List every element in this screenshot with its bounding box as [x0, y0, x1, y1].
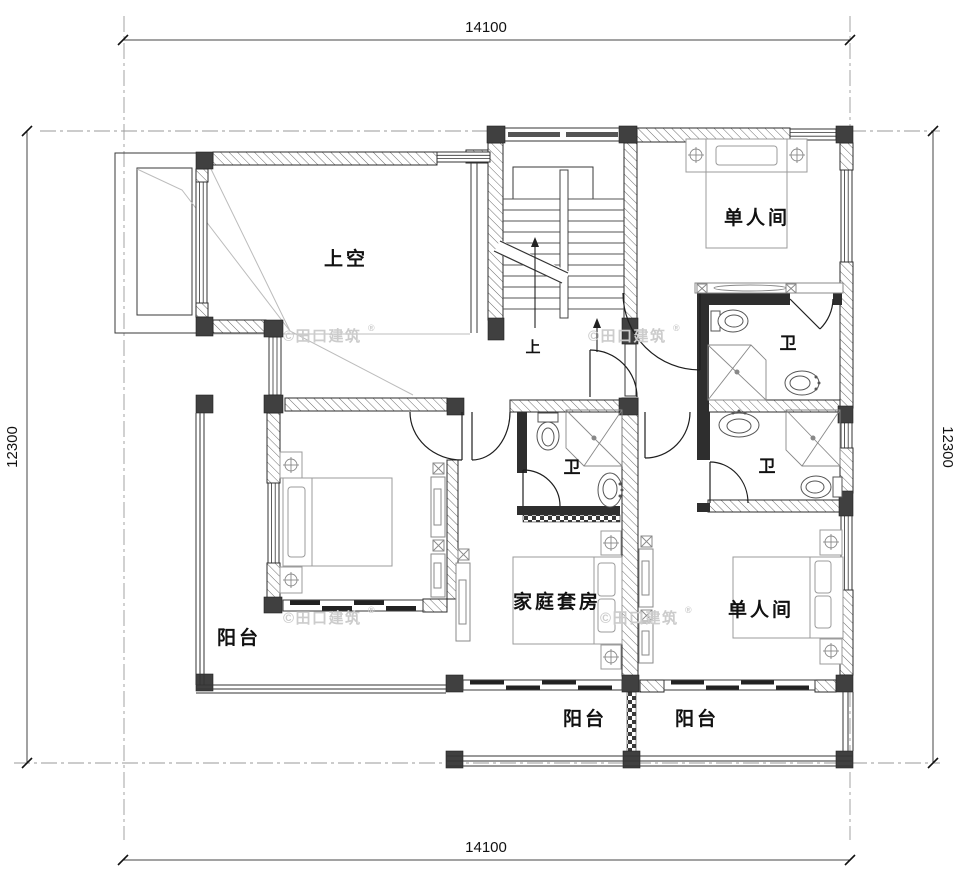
label-bedroom-bottom-right: 单人间 — [728, 598, 794, 621]
bath-window-sill — [523, 515, 620, 522]
label-family-suite: 家庭套房 — [513, 590, 601, 613]
shower-right-bath — [786, 410, 840, 466]
watermark-1: ©田口建筑 ® — [283, 323, 375, 345]
vanity-counter — [695, 283, 843, 293]
svg-text:®: ® — [368, 605, 375, 615]
svg-text:©田口建筑: ©田口建筑 — [588, 327, 667, 345]
shower-top-right-bath — [708, 345, 766, 400]
svg-text:®: ® — [673, 323, 680, 333]
door-bath-top-right — [790, 299, 833, 329]
door-bedroom-bottom-right — [645, 412, 690, 458]
dimension-right: 12300 — [928, 126, 956, 768]
dim-bottom-value: 14100 — [465, 839, 507, 856]
svg-text:©田口建筑: ©田口建筑 — [600, 609, 679, 627]
sliding-door-bedroom-bottom-right — [664, 680, 815, 690]
door-bedroom-left — [410, 412, 462, 460]
window-right-1 — [841, 170, 852, 262]
dim-top-value: 14100 — [465, 19, 507, 36]
window-top-left — [437, 152, 490, 162]
walls-solid — [471, 163, 842, 752]
window-top-right — [790, 129, 836, 140]
window-stair-band — [503, 128, 624, 141]
svg-text:©田口建筑: ©田口建筑 — [283, 609, 362, 627]
label-balcony-left: 阳台 — [217, 626, 261, 649]
svg-text:®: ® — [368, 323, 375, 333]
window-bedroom-left — [268, 483, 279, 563]
wardrobe-left-bedroom — [431, 463, 445, 597]
label-bath-right: 卫 — [759, 457, 776, 476]
label-bath-middle: 卫 — [564, 458, 581, 477]
bed-top-right — [686, 139, 807, 248]
toilet-right-bath — [801, 476, 842, 498]
sliding-door-family-suite — [463, 680, 622, 690]
bay-window — [115, 153, 470, 395]
stair-handrail — [560, 170, 568, 318]
svg-text:©田口建筑: ©田口建筑 — [283, 327, 362, 345]
sink-middle-bath — [598, 473, 624, 507]
svg-text:®: ® — [685, 605, 692, 615]
window-void-left — [196, 182, 207, 303]
label-balcony-right: 阳台 — [675, 707, 719, 730]
dimension-bottom: 14100 — [118, 839, 855, 865]
door-corridor — [590, 350, 637, 397]
dimension-top: 14100 — [118, 19, 855, 45]
stair-up-label: 上 — [525, 339, 540, 356]
wardrobe-family-suite — [456, 549, 470, 641]
floor-plan-canvas: 14100 14100 12300 12300 — [0, 0, 960, 882]
label-void: 上空 — [324, 247, 368, 270]
label-bath-top-right: 卫 — [780, 334, 797, 353]
label-bedroom-top-right: 单人间 — [724, 206, 790, 229]
window-corridor-left — [269, 337, 281, 395]
sink-right-bath — [719, 410, 759, 438]
door-suite-hall — [472, 412, 510, 460]
toilet-top-right-bath — [711, 310, 748, 332]
dim-left-value: 12300 — [4, 426, 21, 468]
wardrobe-bottom-right — [639, 536, 653, 663]
door-bath-right — [710, 462, 748, 503]
bed-bottom-right — [733, 530, 843, 664]
sink-top-right-bath — [785, 371, 821, 395]
dim-right-value: 12300 — [939, 426, 956, 468]
door-bath-middle — [523, 470, 560, 506]
bed-left-bedroom — [280, 452, 392, 593]
floor-plan-page: 14100 14100 12300 12300 — [0, 0, 960, 882]
label-balcony-middle: 阳台 — [563, 707, 607, 730]
toilet-middle-bath — [537, 413, 559, 450]
dimension-left: 12300 — [4, 126, 32, 768]
balcony-divider — [627, 692, 636, 752]
